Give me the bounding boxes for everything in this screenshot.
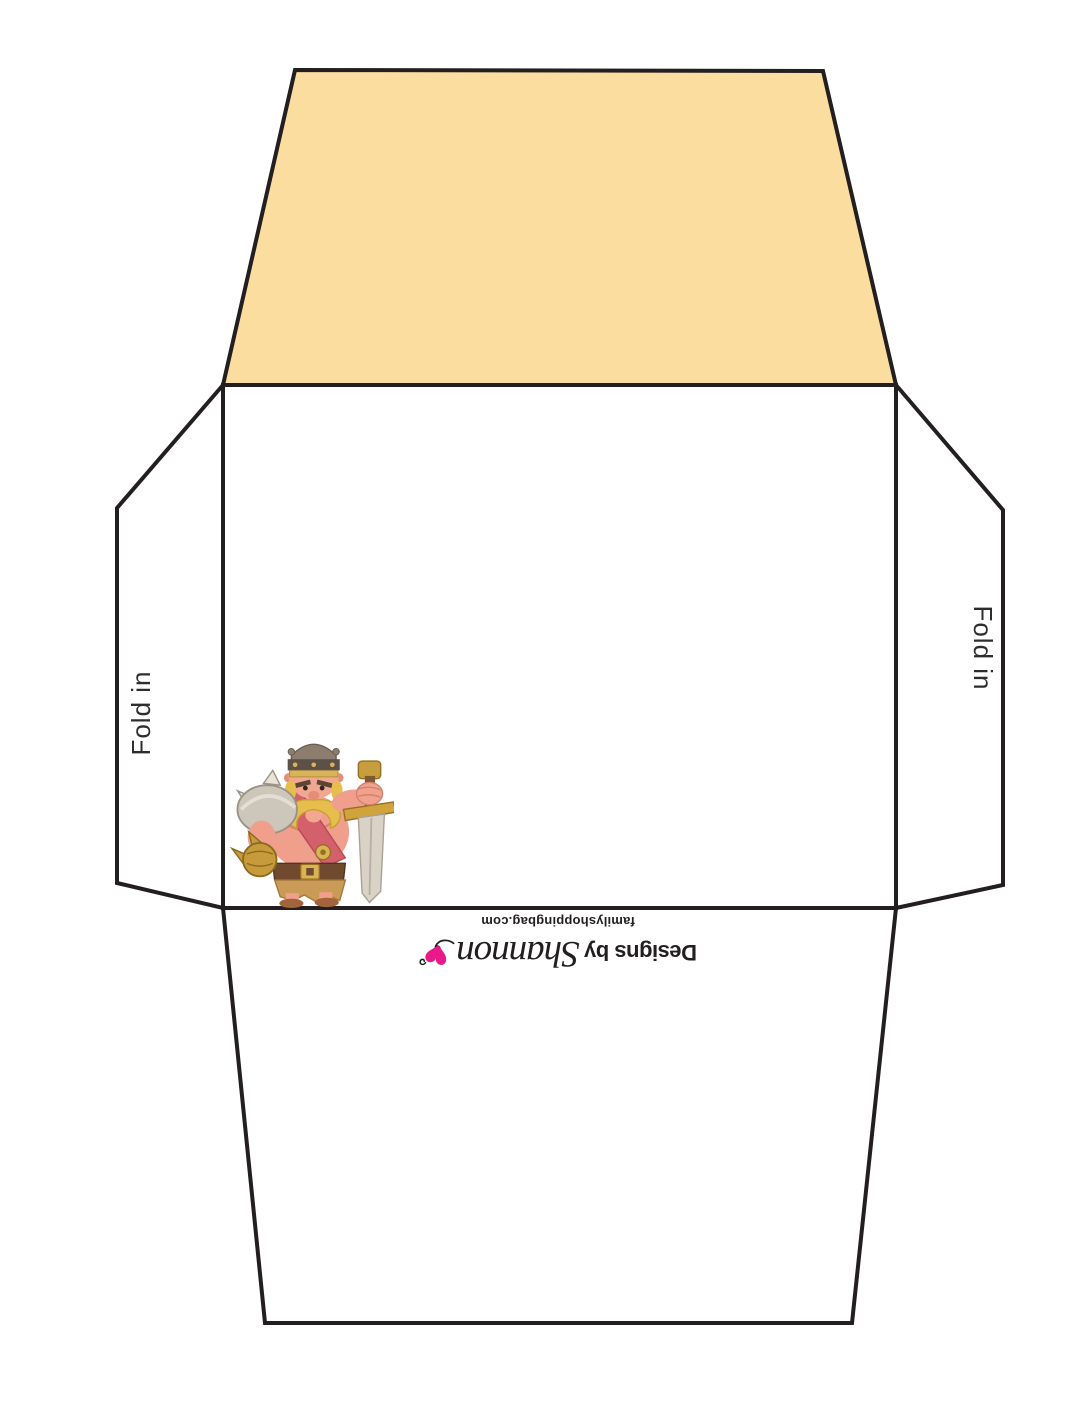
heart-swirl-icon [419, 936, 455, 968]
fold-in-label-left: Fold in [123, 667, 159, 759]
left-flap-shape [117, 385, 223, 908]
fold-in-label-right: Fold in [965, 602, 1001, 694]
branding-block: Designs by Shannon familyshoppingbag.com [419, 914, 697, 972]
barbarian-king-image [226, 722, 394, 908]
designs-by-text: Designs by [585, 939, 697, 965]
website-text: familyshoppingbag.com [419, 914, 697, 929]
top-flap-shape [223, 70, 896, 385]
logo-line: Designs by Shannon [419, 932, 697, 972]
envelope-template-page: Fold in Fold in [0, 0, 1088, 1408]
shannon-script-text: Shannon [457, 933, 580, 976]
envelope-outline [0, 0, 1088, 1408]
